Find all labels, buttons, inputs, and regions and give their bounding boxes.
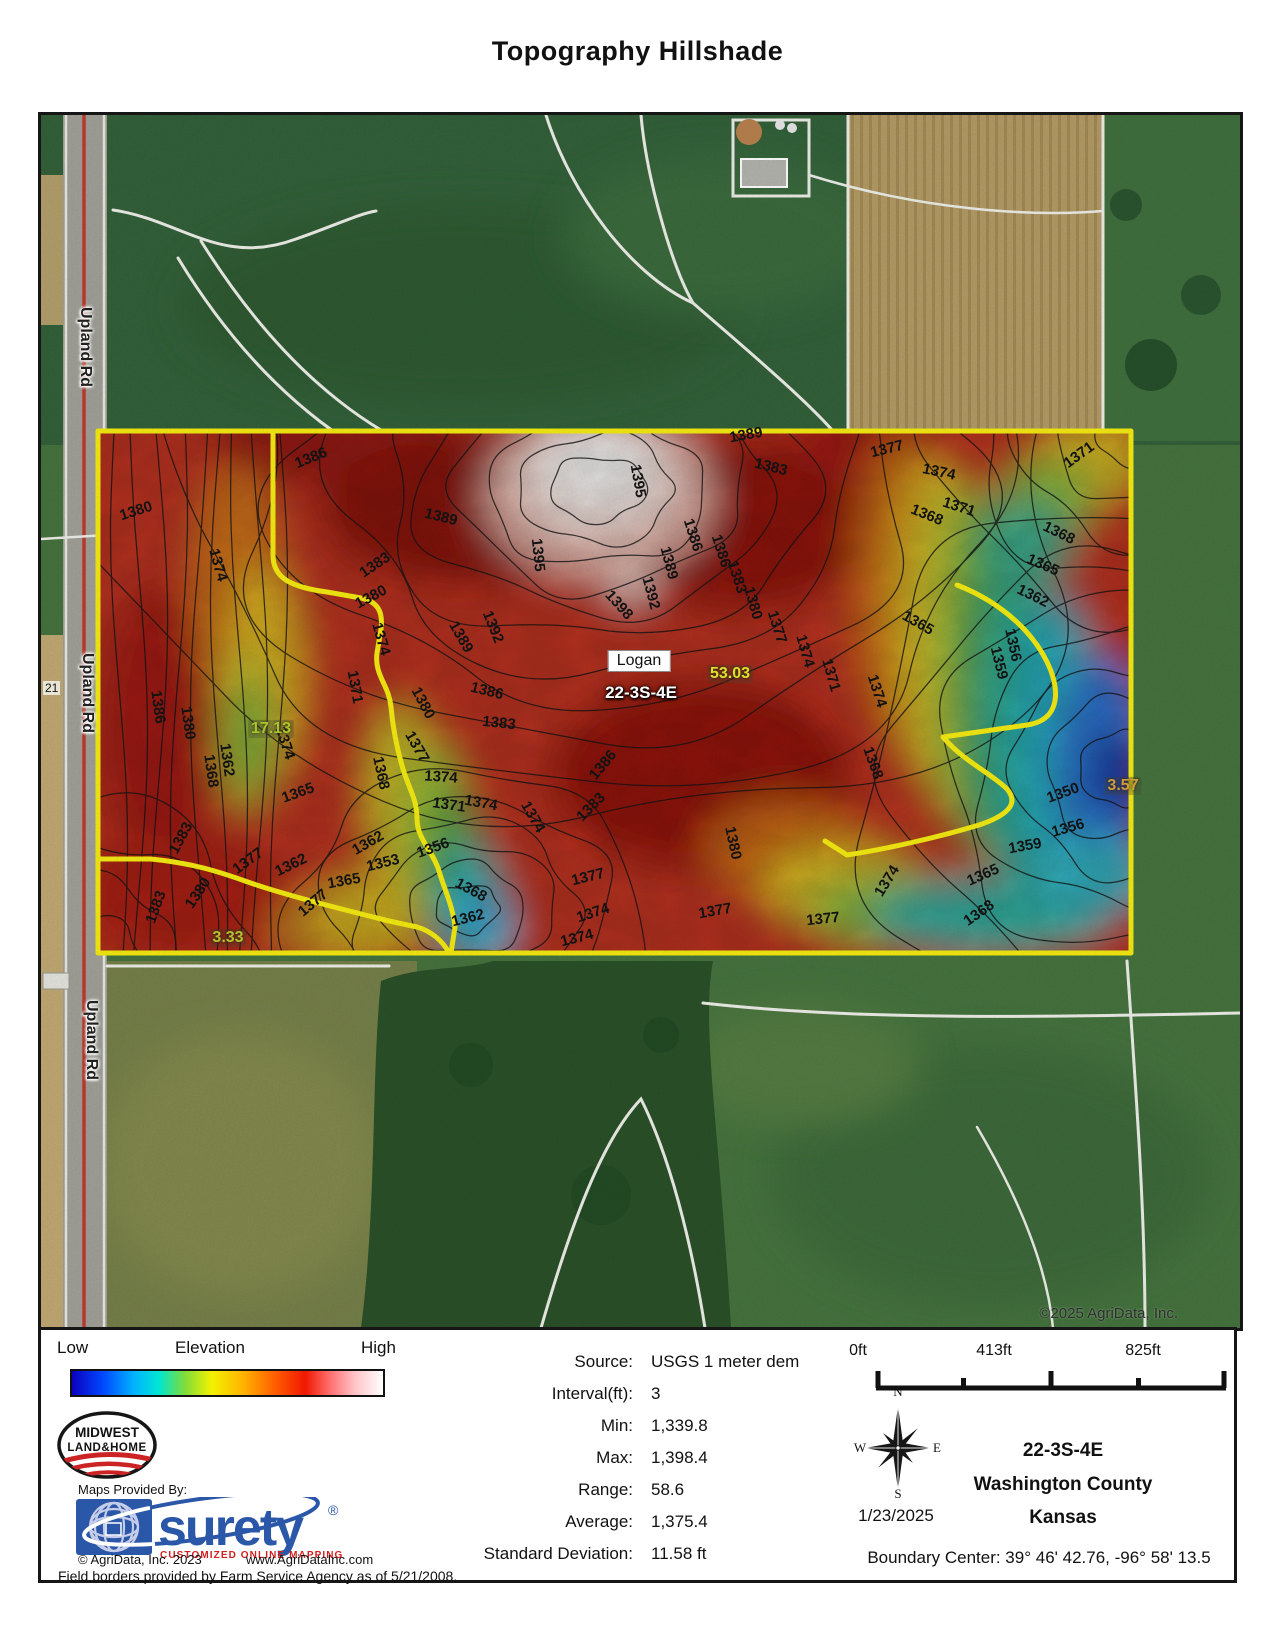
contour-label: 1395	[528, 538, 548, 573]
midwest-logo-text2: LAND&HOME	[67, 1442, 146, 1454]
contour-label: 1371	[431, 794, 466, 815]
stat-row: Source:USGS 1 meter dem	[395, 1352, 835, 1372]
contour-label: 1380	[408, 684, 439, 721]
stat-label: Interval(ft):	[395, 1384, 651, 1404]
contour-label: 1383	[356, 549, 393, 582]
contour-label: 1350	[1044, 779, 1081, 806]
acreage-label: 17.13	[248, 720, 294, 738]
compass-w: W	[854, 1440, 867, 1455]
contour-label: 1362	[450, 906, 486, 931]
stat-value: USGS 1 meter dem	[651, 1352, 799, 1372]
scale-label: 0ft	[849, 1342, 867, 1360]
contour-label: 1371	[1061, 438, 1098, 471]
contour-label: 1374	[871, 862, 903, 899]
contour-label: 1380	[182, 874, 215, 911]
contour-label: 1377	[230, 844, 267, 877]
map-copyright: ©2025 AgriData, Inc.	[1039, 1305, 1178, 1322]
contour-label: 1386	[292, 444, 329, 472]
contour-label: 1362	[1014, 581, 1051, 611]
contour-label: 1377	[806, 909, 841, 929]
contour-label: 1398	[602, 587, 637, 623]
contour-label: 1392	[638, 575, 663, 612]
topography-map: Logan 22-3S-4E 21 ©2025 AgriData, Inc. 1…	[38, 112, 1243, 1331]
contour-label: 1377	[764, 609, 790, 646]
map-labels-layer: Logan 22-3S-4E 21 ©2025 AgriData, Inc. 1…	[41, 115, 1240, 1328]
agridata-copyright: © AgriData, Inc. 2023	[78, 1552, 202, 1567]
contour-label: 1368	[908, 501, 945, 529]
contour-label: 1383	[573, 789, 609, 825]
contour-label: 1353	[365, 851, 401, 876]
contour-label: 1380	[177, 705, 198, 740]
contour-label: 1386	[147, 689, 168, 724]
contour-label: 1386	[586, 747, 620, 783]
contour-label: 1383	[166, 819, 197, 856]
contour-label: 1365	[326, 870, 362, 893]
contour-label: 1377	[401, 728, 432, 765]
contour-label: 1380	[721, 825, 745, 861]
elevation-stats: Source:USGS 1 meter demInterval(ft):3Min…	[395, 1352, 835, 1576]
page: Topography Hillshade	[0, 0, 1275, 1650]
legend-low-label: Low	[57, 1338, 88, 1358]
location-section: 22-3S-4E	[1023, 1440, 1103, 1462]
location-state: Kansas	[1029, 1507, 1097, 1529]
road-label: Upland Rd	[82, 1000, 100, 1080]
acreage-label: 3.33	[209, 929, 246, 947]
stat-value: 1,398.4	[651, 1448, 708, 1468]
contour-label: 1383	[142, 888, 169, 925]
contour-label: 1377	[697, 900, 733, 923]
scale-label: 825ft	[1125, 1342, 1161, 1360]
stat-row: Max:1,398.4	[395, 1448, 835, 1468]
stat-row: Average:1,375.4	[395, 1512, 835, 1532]
scale-label: 413ft	[976, 1342, 1012, 1360]
contour-label: 1365	[1024, 550, 1061, 579]
contour-label: 1374	[792, 633, 818, 670]
road-label: Upland Rd	[76, 307, 94, 387]
page-title: Topography Hillshade	[0, 36, 1275, 67]
contour-label: 1380	[118, 498, 155, 524]
contour-label: 1371	[818, 657, 844, 694]
stat-label: Min:	[395, 1416, 651, 1436]
legend-panel: Low Elevation High MIDWEST LAND&HOME Map…	[38, 1327, 1237, 1583]
boundary-center: Boundary Center: 39° 46' 42.76, -96° 58'…	[867, 1548, 1210, 1568]
contour-label: 1380	[740, 585, 766, 622]
acreage-label: 3.57	[1104, 777, 1141, 795]
contour-label: 1365	[279, 779, 316, 806]
contour-label: 1389	[445, 618, 476, 655]
section-label: 22-3S-4E	[605, 683, 677, 703]
contour-label: 1374	[424, 767, 458, 786]
stat-label: Range:	[395, 1480, 651, 1500]
contour-label: 1389	[423, 505, 459, 530]
contour-label: 1368	[960, 896, 997, 929]
road-label: Upland Rd	[78, 653, 96, 733]
compass-rose: N S W E	[853, 1384, 943, 1500]
surety-registered-mark: ®	[328, 1502, 339, 1518]
contour-label: 1374	[517, 798, 548, 835]
stat-value: 11.58 ft	[651, 1544, 706, 1564]
contour-label: 1356	[414, 834, 451, 861]
contour-label: 1368	[1040, 518, 1077, 548]
legend-elevation-label: Elevation	[175, 1338, 245, 1358]
elevation-gradient-bar	[70, 1369, 385, 1397]
location-county: Washington County	[974, 1474, 1153, 1496]
contour-label: 1365	[964, 860, 1001, 889]
contour-label: 1374	[463, 792, 499, 815]
agridata-url: www.AgriDataInc.com	[246, 1552, 373, 1567]
surety-logo-text: surety	[158, 1499, 304, 1557]
contour-label: 1383	[753, 455, 789, 480]
legend-high-label: High	[361, 1338, 396, 1358]
midwest-logo-text1: MIDWEST	[75, 1425, 139, 1440]
contour-label: 1374	[559, 926, 595, 951]
stat-row: Standard Deviation:11.58 ft	[395, 1544, 835, 1564]
contour-label: 1374	[575, 900, 612, 926]
contour-label: 1380	[352, 582, 389, 613]
stat-label: Source:	[395, 1352, 651, 1372]
contour-label: 1356	[1050, 815, 1087, 841]
contour-label: 1383	[482, 713, 517, 733]
contour-label: 1392	[479, 608, 507, 645]
contour-label: 1389	[728, 424, 764, 447]
stat-label: Standard Deviation:	[395, 1544, 651, 1564]
compass-s: S	[894, 1486, 901, 1500]
stat-row: Range:58.6	[395, 1480, 835, 1500]
contour-label: 1395	[627, 463, 650, 499]
contour-label: 1368	[452, 875, 489, 906]
stat-label: Max:	[395, 1448, 651, 1468]
contour-label: 1362	[272, 850, 309, 880]
contour-label: 1389	[656, 545, 681, 582]
stat-row: Interval(ft):3	[395, 1384, 835, 1404]
contour-label: 1377	[869, 437, 905, 462]
contour-label: 1368	[369, 755, 393, 791]
contour-label: 1377	[295, 886, 331, 920]
contour-label: 1374	[921, 460, 957, 484]
stat-value: 58.6	[651, 1480, 684, 1500]
acreage-label: 53.03	[707, 665, 753, 683]
contour-label: 1371	[941, 494, 978, 520]
contour-label: 1365	[899, 607, 936, 638]
contour-label: 1371	[344, 669, 367, 705]
stat-label: Average:	[395, 1512, 651, 1532]
midwest-land-home-logo: MIDWEST LAND&HOME	[55, 1411, 159, 1481]
highway-number-label: 21	[43, 681, 60, 695]
stat-value: 1,375.4	[651, 1512, 708, 1532]
contour-label: 1368	[859, 744, 886, 781]
compass-e: E	[933, 1440, 941, 1455]
stat-value: 3	[651, 1384, 660, 1404]
contour-label: 1386	[469, 679, 505, 704]
contour-label: 1386	[680, 517, 706, 554]
contour-label: 1359	[1007, 835, 1043, 858]
contour-label: 1374	[205, 547, 231, 584]
contour-label: 1374	[368, 621, 394, 658]
maps-provided-by-label: Maps Provided By:	[78, 1482, 187, 1497]
stat-value: 1,339.8	[651, 1416, 708, 1436]
contour-label: 1377	[570, 865, 606, 890]
compass-n: N	[893, 1384, 903, 1399]
contour-label: 1374	[864, 673, 890, 710]
place-label-logan: Logan	[608, 650, 671, 672]
contour-label: 1362	[216, 742, 237, 777]
map-date: 1/23/2025	[858, 1506, 934, 1526]
stat-row: Min:1,339.8	[395, 1416, 835, 1436]
